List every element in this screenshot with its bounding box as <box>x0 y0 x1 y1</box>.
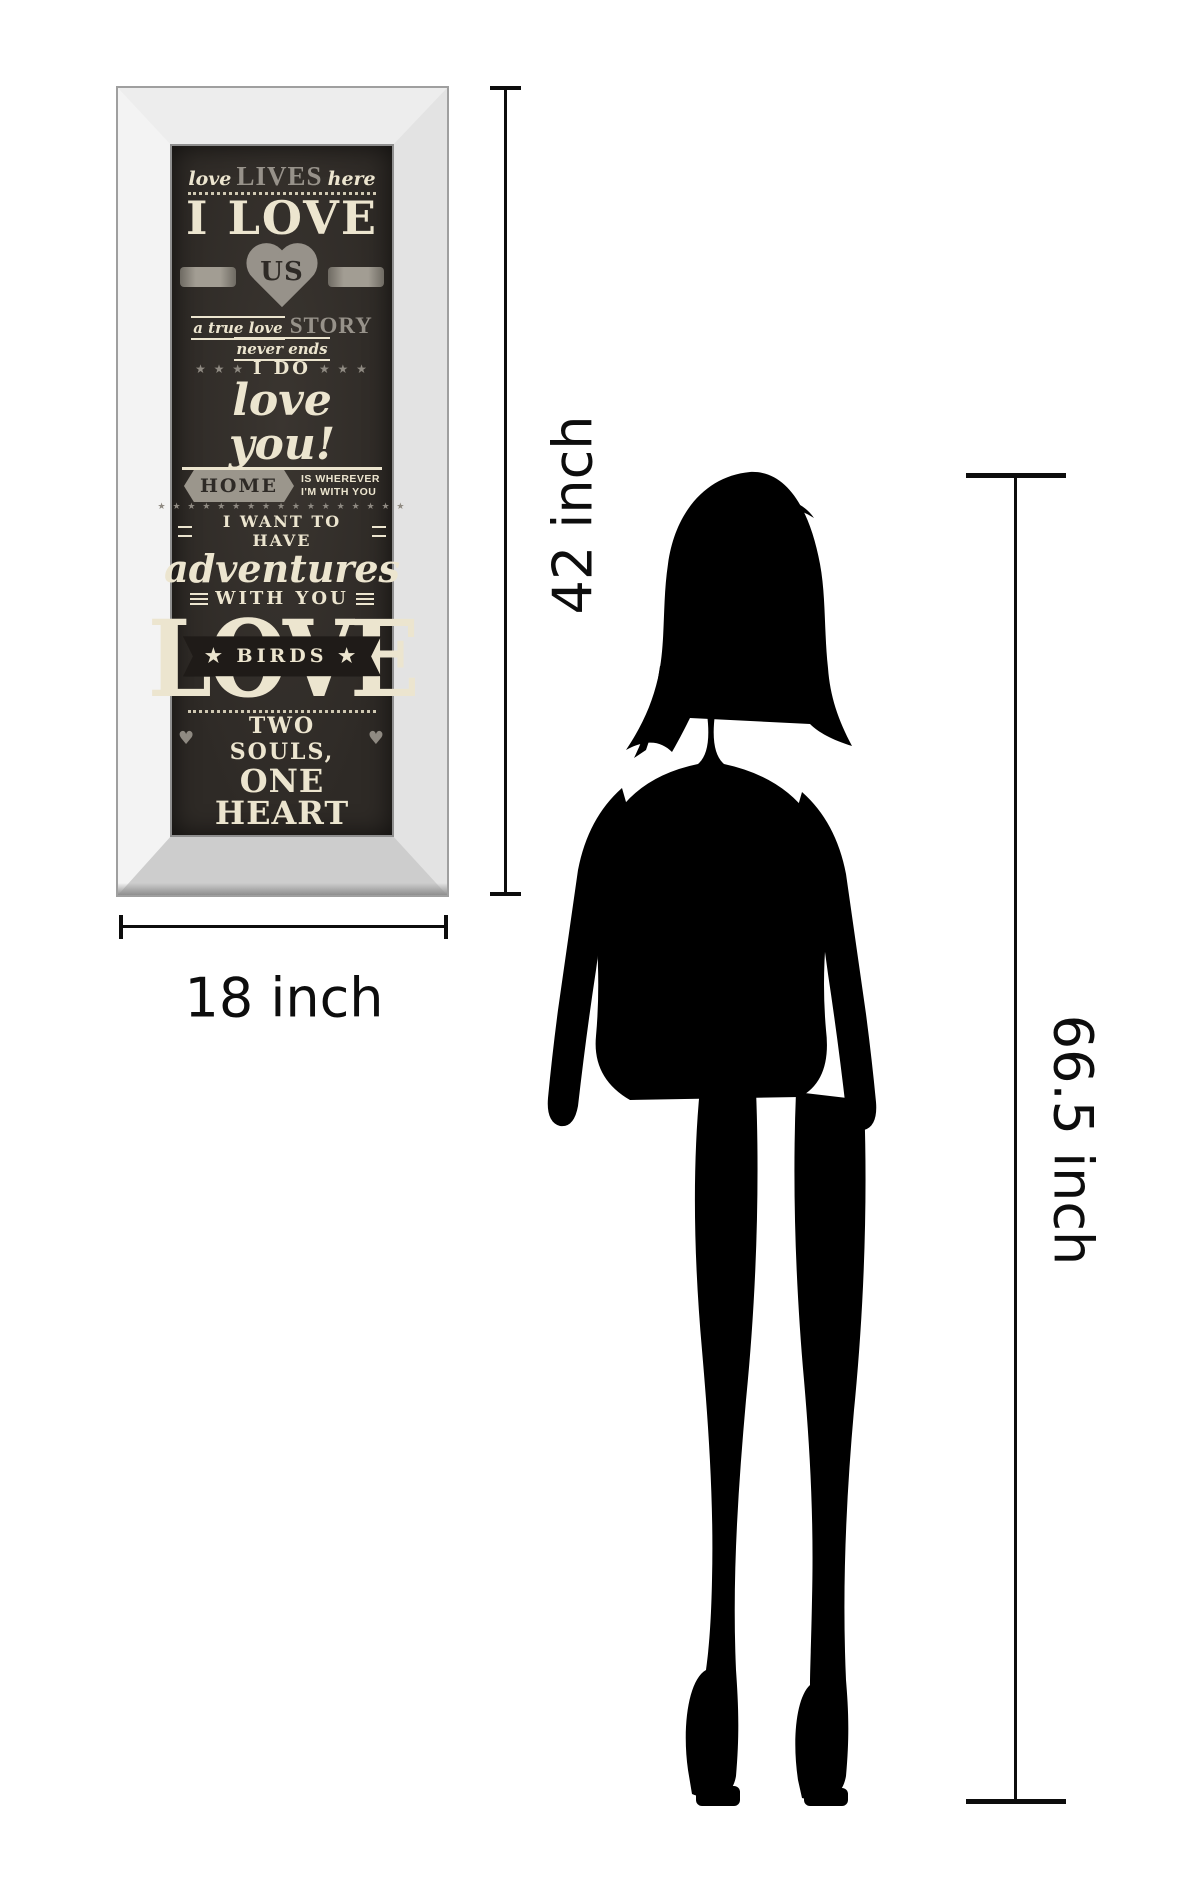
person-height-cap-top <box>966 473 1066 478</box>
heart-icon-left: ♥ <box>178 728 196 749</box>
home-caption: IS WHEREVER I'M WITH YOU <box>301 473 380 499</box>
art-width-cap-right <box>444 915 448 939</box>
mirrored-frame: love LIVES here I LOVE US a true love ST… <box>118 88 447 895</box>
poster-line-one-heart: ONE HEART <box>178 765 386 829</box>
poster-line-i-love: I LOVE <box>186 195 378 241</box>
art-height-cap-top <box>490 86 521 90</box>
word-here: here <box>328 168 376 190</box>
size-comparison-illustration: love LIVES here I LOVE US a true love ST… <box>0 0 1200 1896</box>
poster-line-love-you: love you! <box>178 379 386 467</box>
poster-line-adventures: adventures <box>164 550 400 588</box>
person-height-dimension-line <box>1014 473 1017 1804</box>
art-width-label: 18 inch <box>184 967 383 1030</box>
word-lives: LIVES <box>236 161 322 191</box>
art-width-dimension-line <box>119 925 448 928</box>
poster-line-i-want-to-have: I WANT TO HAVE <box>178 512 386 550</box>
stars-right-icon: ★ ★ ★ <box>319 362 369 376</box>
poster-line-home: HOME IS WHEREVER I'M WITH YOU <box>184 470 380 502</box>
poster-line-true-love-story: a true love STORY never ends <box>178 313 386 358</box>
phrase-is-wherever: IS WHEREVER <box>301 473 380 486</box>
poster-line-love-lives-here: love LIVES here <box>188 161 375 192</box>
rule-mark-left <box>178 526 192 537</box>
birds-banner: ★ BIRDS ★ <box>183 636 381 676</box>
love-birds-group: LOVE ★ BIRDS ★ <box>178 609 386 710</box>
word-love: love <box>188 168 231 190</box>
ribbon-scroll-left <box>180 267 236 287</box>
stars-left-icon: ★ ★ ★ <box>195 362 245 376</box>
rule-mark-right <box>372 526 386 537</box>
art-width-cap-left <box>119 915 123 939</box>
heart-banner-group: US <box>180 241 384 313</box>
person-height-label: 66.5 inch <box>1042 1015 1105 1266</box>
ribbon-scroll-right <box>328 267 384 287</box>
woman-silhouette <box>460 470 940 1810</box>
art-poster: love LIVES here I LOVE US a true love ST… <box>172 146 392 835</box>
person-height-cap-bottom <box>966 1799 1066 1804</box>
phrase-i-want-to-have: I WANT TO HAVE <box>199 512 364 550</box>
heart-shape: US <box>242 241 322 313</box>
heart-icon-right: ♥ <box>368 728 386 749</box>
stars-divider: ★ ★ ★ ★ ★ ★ ★ ★ ★ ★ ★ ★ ★ ★ ★ ★ ★ <box>158 502 407 512</box>
phrase-im-with-you: I'M WITH YOU <box>301 486 376 499</box>
word-story: STORY <box>290 313 373 338</box>
word-us: US <box>242 257 322 287</box>
home-ribbon-banner: HOME <box>184 470 294 502</box>
